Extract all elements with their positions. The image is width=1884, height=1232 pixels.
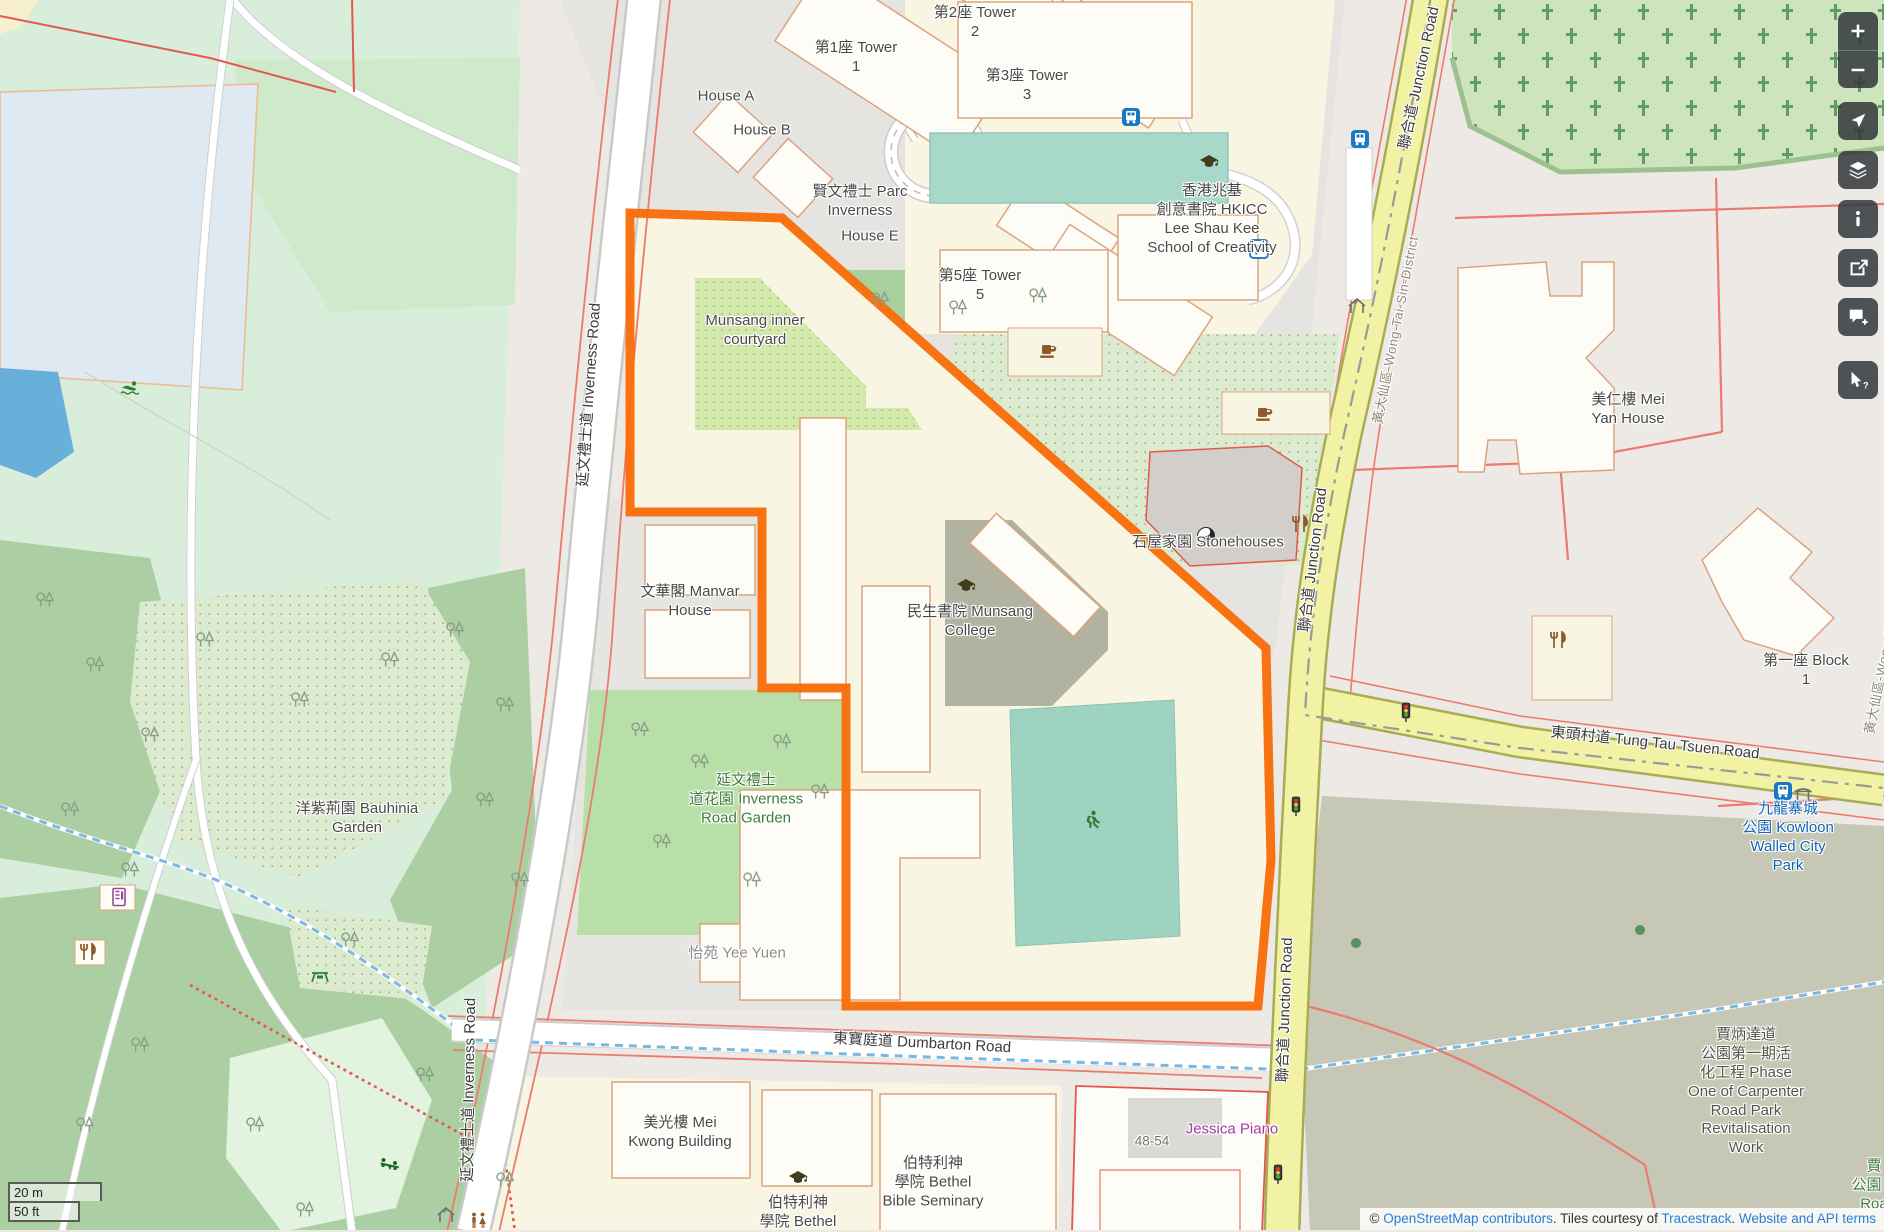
osm-contributors-link[interactable]: OpenStreetMap contributors bbox=[1383, 1211, 1553, 1226]
note-icon bbox=[1847, 306, 1869, 328]
bus-icon bbox=[1122, 108, 1140, 126]
layers-button[interactable] bbox=[1838, 151, 1878, 189]
treedot-icon bbox=[1635, 925, 1645, 935]
share-button[interactable] bbox=[1838, 249, 1878, 287]
zoom-control-group bbox=[1838, 12, 1878, 88]
attribution-prefix: © bbox=[1370, 1211, 1384, 1226]
vending-icon bbox=[113, 889, 125, 906]
map-svg: P bbox=[0, 0, 1884, 1230]
bus-icon bbox=[1351, 130, 1369, 148]
plus-icon bbox=[1847, 20, 1869, 42]
share-icon bbox=[1847, 257, 1869, 279]
attribution-mid1: . Tiles courtesy of bbox=[1553, 1211, 1662, 1226]
map-controls bbox=[1838, 12, 1878, 410]
tracestrack-link[interactable]: Tracestrack bbox=[1661, 1211, 1731, 1226]
zoom-out-button[interactable] bbox=[1838, 50, 1878, 88]
share-icon bbox=[1852, 261, 1867, 275]
query-features-button[interactable] bbox=[1838, 361, 1878, 399]
parking-icon bbox=[1250, 240, 1268, 258]
note-icon bbox=[1850, 310, 1868, 325]
minus-icon bbox=[1847, 59, 1869, 81]
info-icon bbox=[1856, 211, 1860, 226]
treedot-icon bbox=[1351, 938, 1361, 948]
yinyang-icon bbox=[1198, 528, 1215, 545]
attribution-mid2: . bbox=[1731, 1211, 1739, 1226]
plus-icon bbox=[1852, 25, 1865, 38]
scale-bar: 20 m 50 ft bbox=[8, 1182, 102, 1222]
layers-icon bbox=[1847, 159, 1869, 181]
info-icon bbox=[1847, 208, 1869, 230]
attribution: © OpenStreetMap contributors. Tiles cour… bbox=[1360, 1208, 1884, 1230]
bus-icon bbox=[1774, 782, 1792, 800]
add-note-button[interactable] bbox=[1838, 298, 1878, 336]
show-my-location-button[interactable] bbox=[1838, 102, 1878, 140]
map-key-button[interactable] bbox=[1838, 200, 1878, 238]
scale-imperial: 50 ft bbox=[8, 1201, 80, 1222]
locate-icon bbox=[1847, 110, 1869, 132]
scale-metric: 20 m bbox=[8, 1182, 102, 1201]
query-icon bbox=[1847, 369, 1869, 391]
locate-icon bbox=[1852, 114, 1866, 128]
zoom-in-button[interactable] bbox=[1838, 12, 1878, 50]
map-canvas[interactable]: P bbox=[0, 0, 1884, 1230]
terms-link[interactable]: Website and API terms bbox=[1739, 1211, 1876, 1226]
layers-icon bbox=[1850, 162, 1867, 179]
query-icon bbox=[1852, 372, 1869, 391]
